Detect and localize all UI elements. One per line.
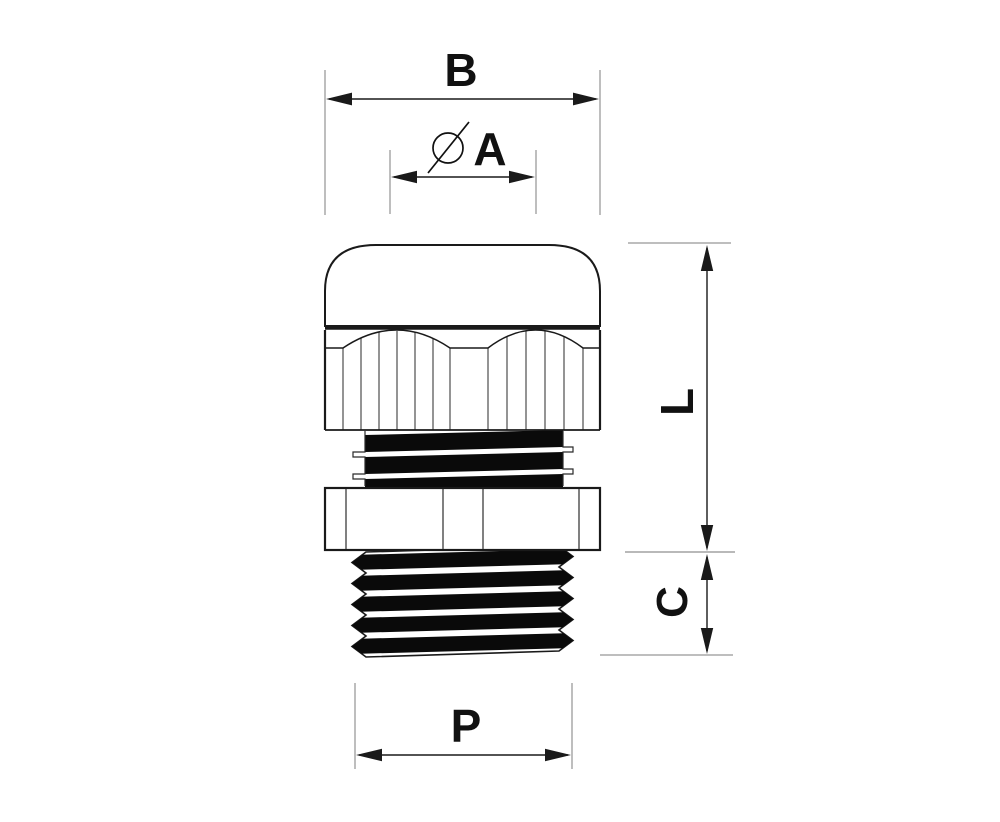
dim-l-arrow-bottom	[701, 525, 713, 551]
dim-c-arrow-top	[701, 554, 713, 580]
hex-nut-body	[325, 488, 600, 550]
dim-l-arrow-top	[701, 245, 713, 271]
dim-b-arrow-left	[326, 93, 352, 106]
dim-label-l: L	[654, 388, 700, 416]
knurl-ring	[325, 329, 600, 430]
dim-p-arrow-right	[545, 749, 571, 761]
dim-p-arrow-left	[356, 749, 382, 761]
dome-cap	[325, 245, 600, 328]
lower-thread-stripes	[352, 549, 573, 654]
dim-a-arrow-left	[391, 171, 417, 183]
diameter-icon	[428, 122, 469, 173]
dim-c-arrow-bottom	[701, 628, 713, 654]
dim-label-c: C	[651, 586, 695, 618]
technical-drawing-canvas: B A L C P	[0, 0, 1000, 822]
lower-thread	[352, 546, 573, 657]
dim-b-arrow-right	[573, 93, 599, 106]
dim-label-b: B	[444, 47, 477, 93]
dimension-a	[390, 122, 536, 214]
hex-nut	[325, 488, 600, 550]
dim-a-arrow-right	[509, 171, 535, 183]
dim-label-p: P	[451, 703, 482, 749]
upper-thread	[353, 430, 573, 496]
dome-cap-outline	[325, 245, 600, 326]
upper-thread-stripes	[365, 430, 563, 496]
dim-label-a: A	[473, 126, 506, 172]
